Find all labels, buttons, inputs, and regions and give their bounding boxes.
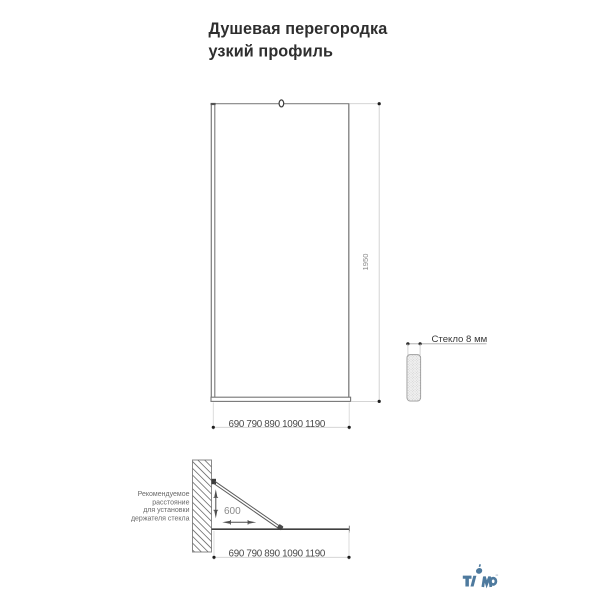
svg-text:1950: 1950 (361, 254, 370, 271)
svg-text:Стекло 8 мм: Стекло 8 мм (432, 334, 488, 345)
svg-text:расстояние: расстояние (152, 499, 189, 506)
svg-text:690 790 890 1090 1190: 690 790 890 1090 1190 (229, 548, 326, 559)
svg-text:Рекомендуемое: Рекомендуемое (138, 491, 190, 498)
svg-text:узкий профиль: узкий профиль (209, 43, 334, 61)
svg-text:600: 600 (224, 506, 241, 517)
svg-text:для установки: для установки (143, 507, 189, 514)
svg-text:Душевая перегородка: Душевая перегородка (209, 20, 389, 38)
svg-text:690 790 890 1090 1190: 690 790 890 1090 1190 (229, 419, 326, 430)
svg-text:держателя стекла: держателя стекла (131, 516, 190, 523)
